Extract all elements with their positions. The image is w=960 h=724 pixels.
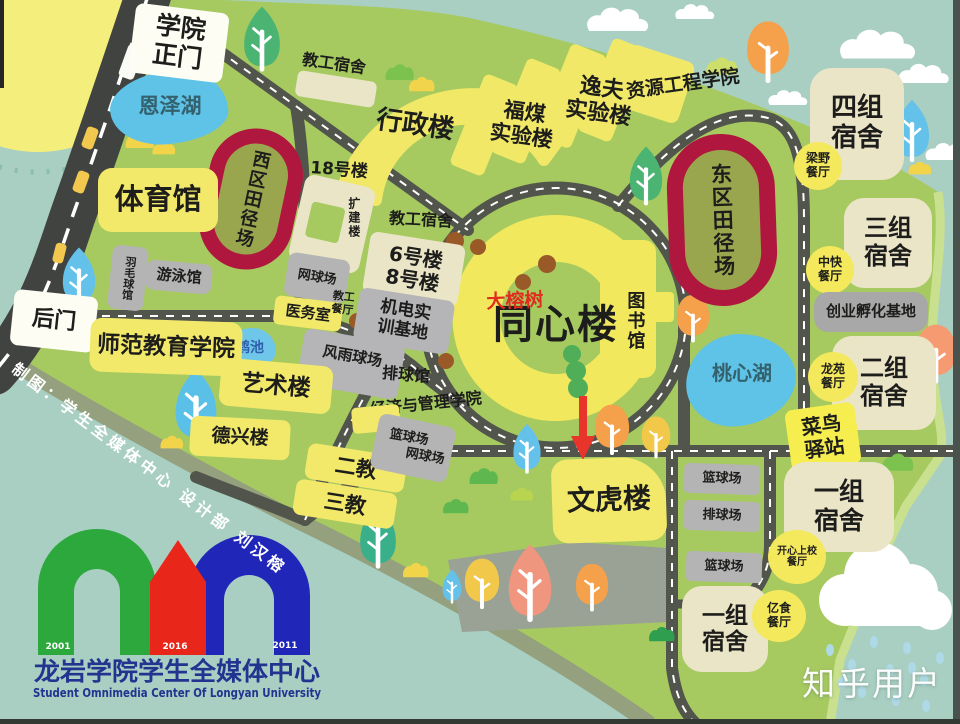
dexing-building-label: 德兴楼 <box>211 426 269 451</box>
cainiao-station-label: 菜鸟 驿站 <box>800 411 846 462</box>
campus-map: 恩泽湖 桃心湖 鹤池 学院 正门 后门 西区田径场 东区田径场 体育馆 教工宿舍… <box>0 0 960 724</box>
edge-bar-bottom <box>0 719 960 724</box>
badminton-hall-label: 羽毛球馆 <box>119 255 136 300</box>
cloud-icon <box>840 30 915 59</box>
yishi-canteen: 亿食 餐厅 <box>752 590 806 642</box>
dorm-group1-upper-label: 一组 宿舍 <box>814 478 864 536</box>
logo-year-mid: 2016 <box>162 642 187 652</box>
building-18-courtyard <box>305 201 346 244</box>
dorm-group3: 三组 宿舍 <box>844 198 932 288</box>
dorm-group2-label: 二组 宿舍 <box>860 355 908 410</box>
kaixin-canteen: 开心上校 餐厅 <box>768 530 826 584</box>
badminton-hall: 羽毛球馆 <box>107 244 149 311</box>
back-gate-sign: 后门 <box>9 289 98 353</box>
dexing-building: 德兴楼 <box>189 415 291 460</box>
wenhu-label: 文虎楼 <box>566 482 651 517</box>
logo-green-arch <box>38 529 156 655</box>
east-athletics-field-label: 东区田径场 <box>708 162 736 278</box>
building-6-8-label: 6号楼 8号楼 <box>384 242 444 296</box>
omnimedia-center-logo: 2001 2016 2011 龙岩学院学生全媒体中心 Student Omnim… <box>25 515 345 715</box>
edge-bar-right <box>953 0 960 724</box>
logo-year-right: 2011 <box>272 641 297 651</box>
west-athletics-field-label: 西区田径场 <box>230 148 271 250</box>
volleyball-court-1: 排球场 <box>683 500 760 533</box>
bush-icon <box>908 162 931 175</box>
gym-label: 体育馆 <box>114 183 201 216</box>
basketball-court-1-label: 篮球场 <box>702 471 742 487</box>
swimming-hall: 游泳馆 <box>145 259 213 295</box>
zhongkuai-canteen: 中快 餐厅 <box>806 246 854 294</box>
tennis-court-west-label: 网球场 <box>297 268 338 289</box>
logo-title-en: Student Omnimedia Center Of Longyan Univ… <box>33 685 321 700</box>
cloud-icon <box>587 8 648 31</box>
zhihu-watermark: 知乎用户 <box>794 660 950 702</box>
longyuan-canteen-label: 龙苑 餐厅 <box>821 363 845 391</box>
dorm-group4-label: 四组 宿舍 <box>831 94 883 154</box>
logo-title-cn: 龙岩学院学生全媒体中心 <box>34 657 320 686</box>
volleyball-court-1-label: 排球场 <box>702 508 742 524</box>
liangye-canteen: 梁野 餐厅 <box>794 142 842 190</box>
incubator-base: 创业孵化基地 <box>814 292 928 332</box>
cloud-icon <box>768 90 807 105</box>
cloud-icon <box>899 64 949 83</box>
banyan-label: 大榕树 <box>484 291 547 313</box>
building-gym: 体育馆 <box>98 168 218 232</box>
incubator-base-label: 创业孵化基地 <box>826 303 916 320</box>
east-athletics-field: 东区田径场 <box>665 132 779 308</box>
liangye-canteen-label: 梁野 餐厅 <box>806 152 830 180</box>
art-building: 艺术楼 <box>218 357 334 415</box>
tree-icon <box>747 21 789 83</box>
edge-bar-left <box>0 0 4 88</box>
dorm-group3-label: 三组 宿舍 <box>864 215 912 270</box>
zhongkuai-canteen-label: 中快 餐厅 <box>818 256 842 284</box>
normal-college-label: 师范教育学院 <box>97 331 236 362</box>
longyuan-canteen: 龙苑 餐厅 <box>808 352 858 402</box>
basketball-court-2: 篮球场 <box>685 551 762 584</box>
logo-red-house <box>150 540 206 655</box>
main-gate-sign: 学院 正门 <box>128 3 230 84</box>
extension-building-label: 扩建楼 <box>344 188 362 248</box>
kaixin-canteen-label: 开心上校 餐厅 <box>777 546 817 569</box>
dorm-group1-lower-label: 一组 宿舍 <box>702 603 748 656</box>
wenhu-building: 文虎楼 <box>551 456 668 544</box>
cloud-icon <box>675 4 714 19</box>
swimming-hall-label: 游泳馆 <box>156 266 202 287</box>
main-gate-label: 学院 正门 <box>151 11 208 74</box>
library-label: 图书馆 <box>620 286 648 356</box>
logo-year-left: 2001 <box>45 642 70 652</box>
basketball-court-1: 篮球场 <box>683 463 760 496</box>
back-gate-label: 后门 <box>31 306 77 336</box>
taoxin-lake-label: 桃心湖 <box>700 360 784 386</box>
jidian-base-label: 机电实 训基地 <box>376 298 432 345</box>
yishi-canteen-label: 亿食 餐厅 <box>767 602 791 630</box>
normal-college: 师范教育学院 <box>89 317 243 376</box>
enze-lake-label: 恩泽湖 <box>118 92 222 120</box>
art-building-label: 艺术楼 <box>240 370 311 402</box>
basketball-court-2-label: 篮球场 <box>704 559 744 575</box>
